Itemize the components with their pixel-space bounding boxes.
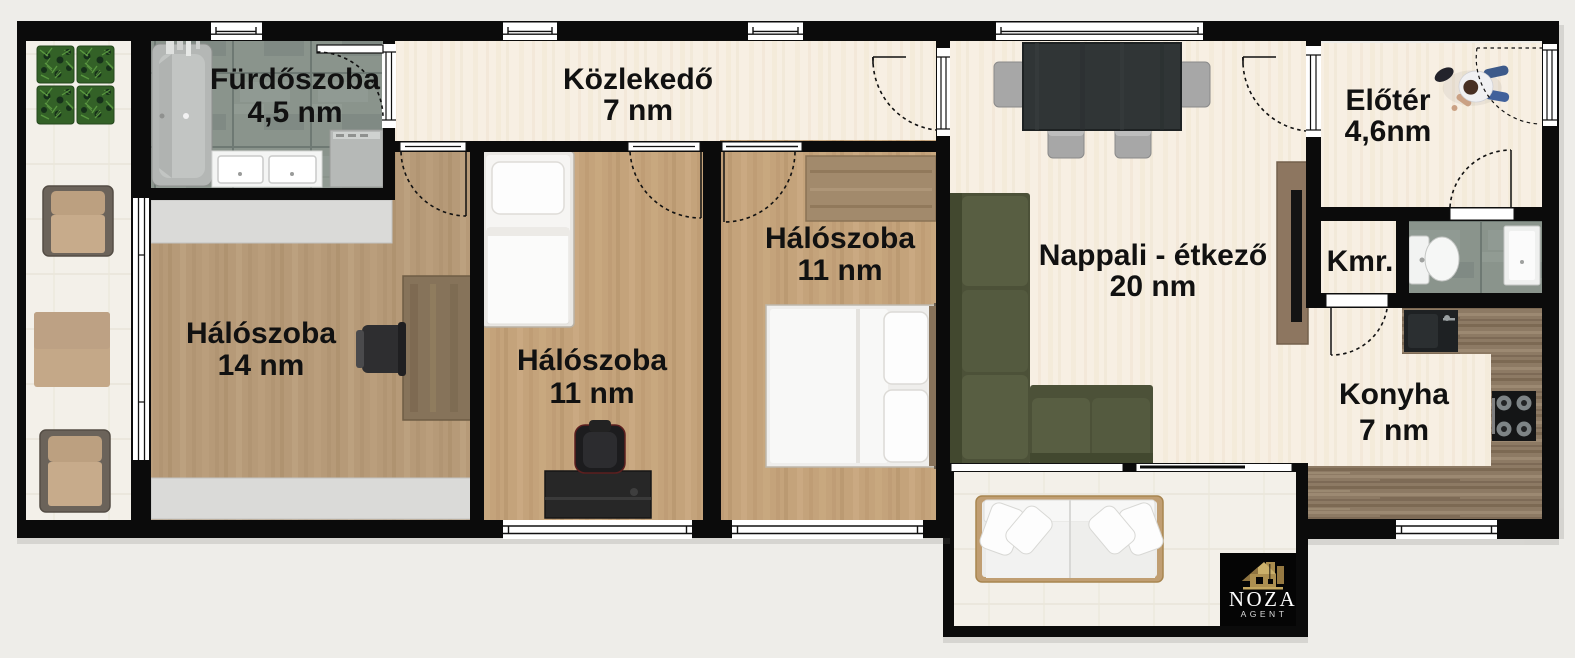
svg-text:Közlekedő: Közlekedő	[563, 63, 713, 96]
svg-text:20 nm: 20 nm	[1110, 270, 1197, 303]
svg-text:4,5 nm: 4,5 nm	[247, 96, 342, 129]
svg-text:Hálószoba: Hálószoba	[186, 317, 336, 350]
svg-text:Előtér: Előtér	[1345, 84, 1430, 117]
svg-text:Kmr.: Kmr.	[1327, 245, 1394, 278]
svg-text:11 nm: 11 nm	[549, 377, 634, 410]
svg-text:4,6nm: 4,6nm	[1345, 115, 1432, 148]
svg-text:Konyha: Konyha	[1339, 378, 1449, 411]
svg-text:7 nm: 7 nm	[1359, 414, 1429, 447]
svg-text:7 nm: 7 nm	[603, 94, 673, 127]
svg-text:Fürdőszoba: Fürdőszoba	[210, 63, 380, 96]
svg-text:Hálószoba: Hálószoba	[765, 222, 915, 255]
svg-text:11 nm: 11 nm	[797, 254, 882, 287]
svg-text:AGENT: AGENT	[1241, 609, 1288, 619]
svg-text:Hálószoba: Hálószoba	[517, 344, 667, 377]
svg-text:14 nm: 14 nm	[218, 349, 305, 382]
svg-text:Nappali - étkező: Nappali - étkező	[1039, 239, 1267, 272]
svg-text:NOZA: NOZA	[1229, 587, 1297, 611]
